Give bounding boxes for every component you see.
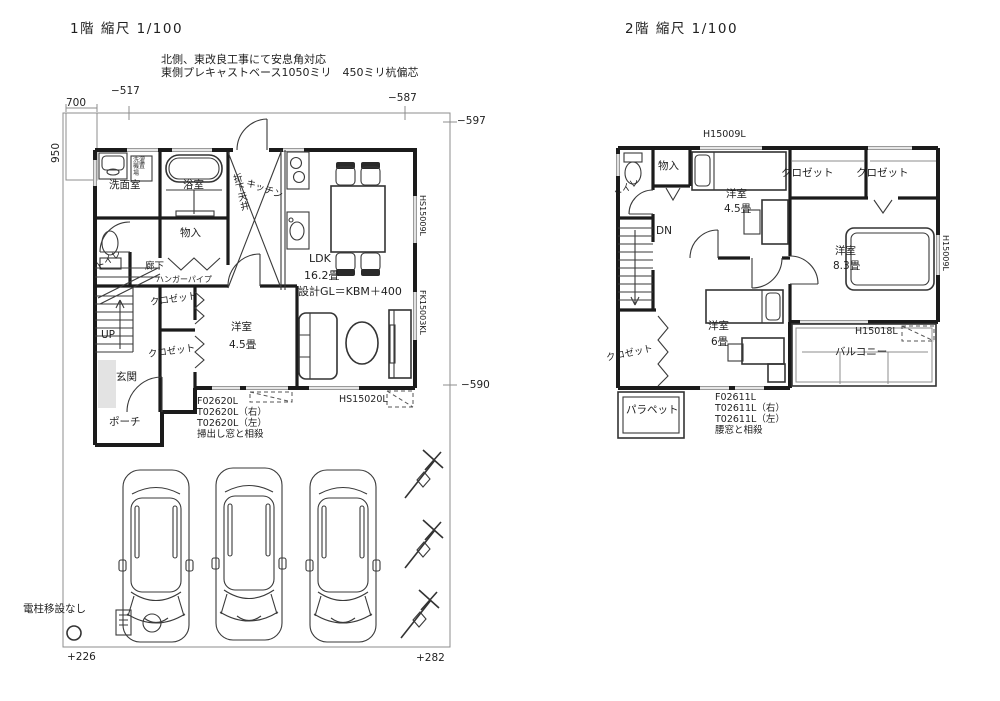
window-id-h15009-right: H15009L	[941, 235, 950, 271]
dim-minus587: −587	[388, 92, 417, 104]
stairs-2f	[618, 228, 653, 305]
room-closet-b-2f: クロゼット	[856, 167, 909, 179]
room-bathroom: 浴室	[183, 179, 204, 191]
utility-pole-note: 電柱移設なし	[23, 603, 86, 615]
utility-pole	[67, 626, 81, 640]
room-entrance: 玄関	[116, 371, 137, 383]
floor1-title: 1階 縮尺 1/100	[70, 22, 183, 38]
stairs-up-label: UP	[101, 329, 115, 341]
room-washer-space: 洗濯機置場	[133, 158, 148, 177]
room-washroom: 洗面室	[109, 179, 141, 191]
design-gl-note: 設計GL＝KBM＋400	[298, 286, 402, 299]
floor2-title: 2階 縮尺 1/100	[625, 22, 738, 38]
window-id-hs15020: HS15020L	[339, 395, 388, 406]
window-note-2f-line4: 腰窓と相殺	[715, 426, 763, 437]
room-closet-a-2f: クロゼット	[781, 167, 834, 179]
hanger-pipe-note: ハンガーパイプ	[156, 275, 212, 284]
room-ldk-size: 16.2畳	[304, 270, 340, 283]
dim-plus226: +226	[67, 651, 96, 663]
furniture-2f	[692, 152, 936, 382]
floorplan-canvas: 1階 縮尺 1/100 北側、東改良工事にて安息角対応 東側プレキャストベース1…	[0, 0, 1000, 701]
ground-note-line2: 東側プレキャストベース1050ミリ 450ミリ杭偏芯	[161, 67, 418, 80]
room-ldk: LDK	[309, 253, 331, 266]
boundary-markers	[401, 450, 443, 638]
dim-minus517: −517	[111, 85, 140, 97]
kitchen-fixtures	[228, 150, 309, 290]
room-western-45: 洋室	[726, 188, 747, 200]
room-western-83: 洋室	[835, 245, 856, 257]
window-note-1f-line4: 掃出し窓と相殺	[197, 430, 264, 441]
doors-1f	[100, 119, 267, 412]
dining-set	[331, 162, 385, 276]
window-id-fk15003: FK15003KL	[418, 290, 427, 335]
room-western-1f-size: 4.5畳	[229, 339, 256, 351]
room-storage-2f: 物入	[658, 160, 679, 172]
cars	[116, 468, 380, 642]
dim-950: 950	[50, 143, 62, 163]
window-id-h15018: H15018L	[855, 327, 898, 338]
floor2-plan	[618, 148, 938, 438]
dim-plus282: +282	[416, 652, 445, 664]
entrance-tile	[98, 360, 116, 408]
room-storage-1f: 物入	[180, 227, 201, 239]
room-western-45-size: 4.5畳	[724, 203, 751, 215]
room-porch: ポーチ	[109, 416, 141, 428]
ground-note-line1: 北側、東改良工事にて安息角対応	[161, 54, 326, 67]
stairs-down-label: DN	[656, 225, 672, 237]
room-western-6: 洋室	[708, 320, 729, 332]
dim-minus597: −597	[457, 115, 486, 127]
dim-minus590: −590	[461, 379, 490, 391]
balcony-label: バルコニー	[835, 346, 887, 358]
living-furniture	[250, 310, 413, 407]
parapet-label: パラペット	[626, 404, 679, 416]
dim-700: 700	[66, 97, 86, 109]
room-western-83-size: 8.3畳	[833, 260, 860, 272]
room-western-6-size: 6畳	[711, 336, 728, 348]
window-id-hs15009-1f: HS15009L	[418, 195, 427, 236]
room-hallway: 廊下	[145, 262, 164, 273]
room-western-1f: 洋室	[231, 321, 252, 333]
window-id-h15009-top: H15009L	[703, 130, 746, 141]
